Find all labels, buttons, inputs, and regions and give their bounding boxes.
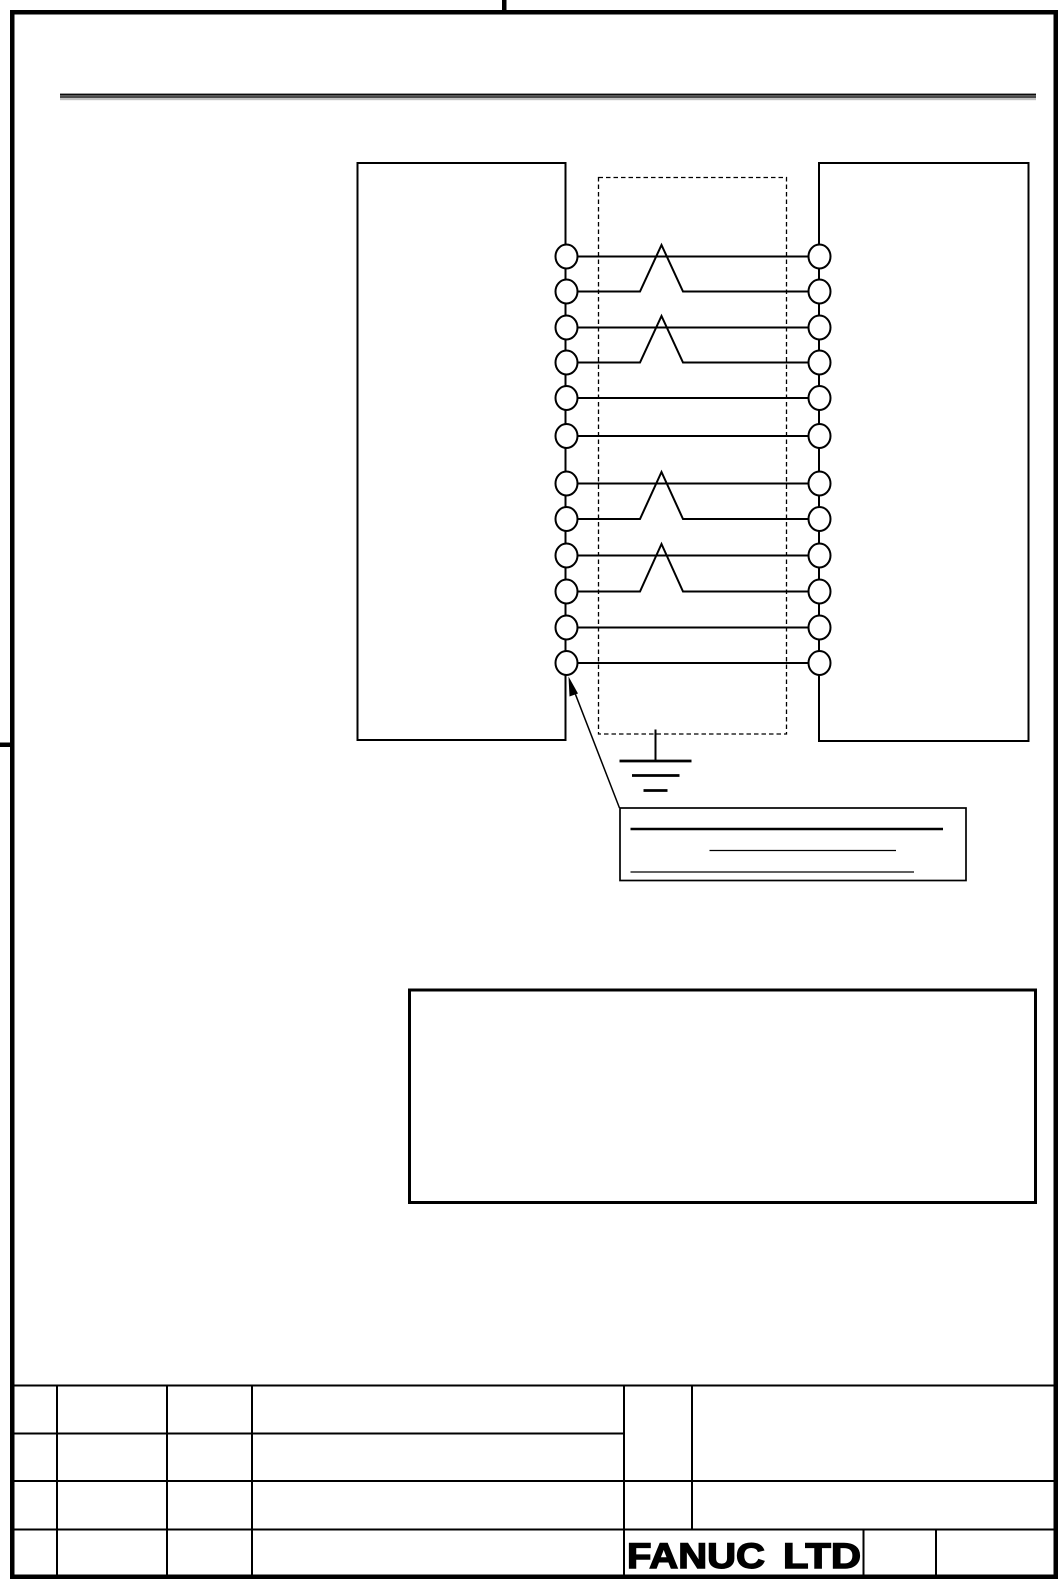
svg-text:FANUC: FANUC <box>627 1537 765 1576</box>
svg-text:LTD: LTD <box>783 1537 861 1576</box>
